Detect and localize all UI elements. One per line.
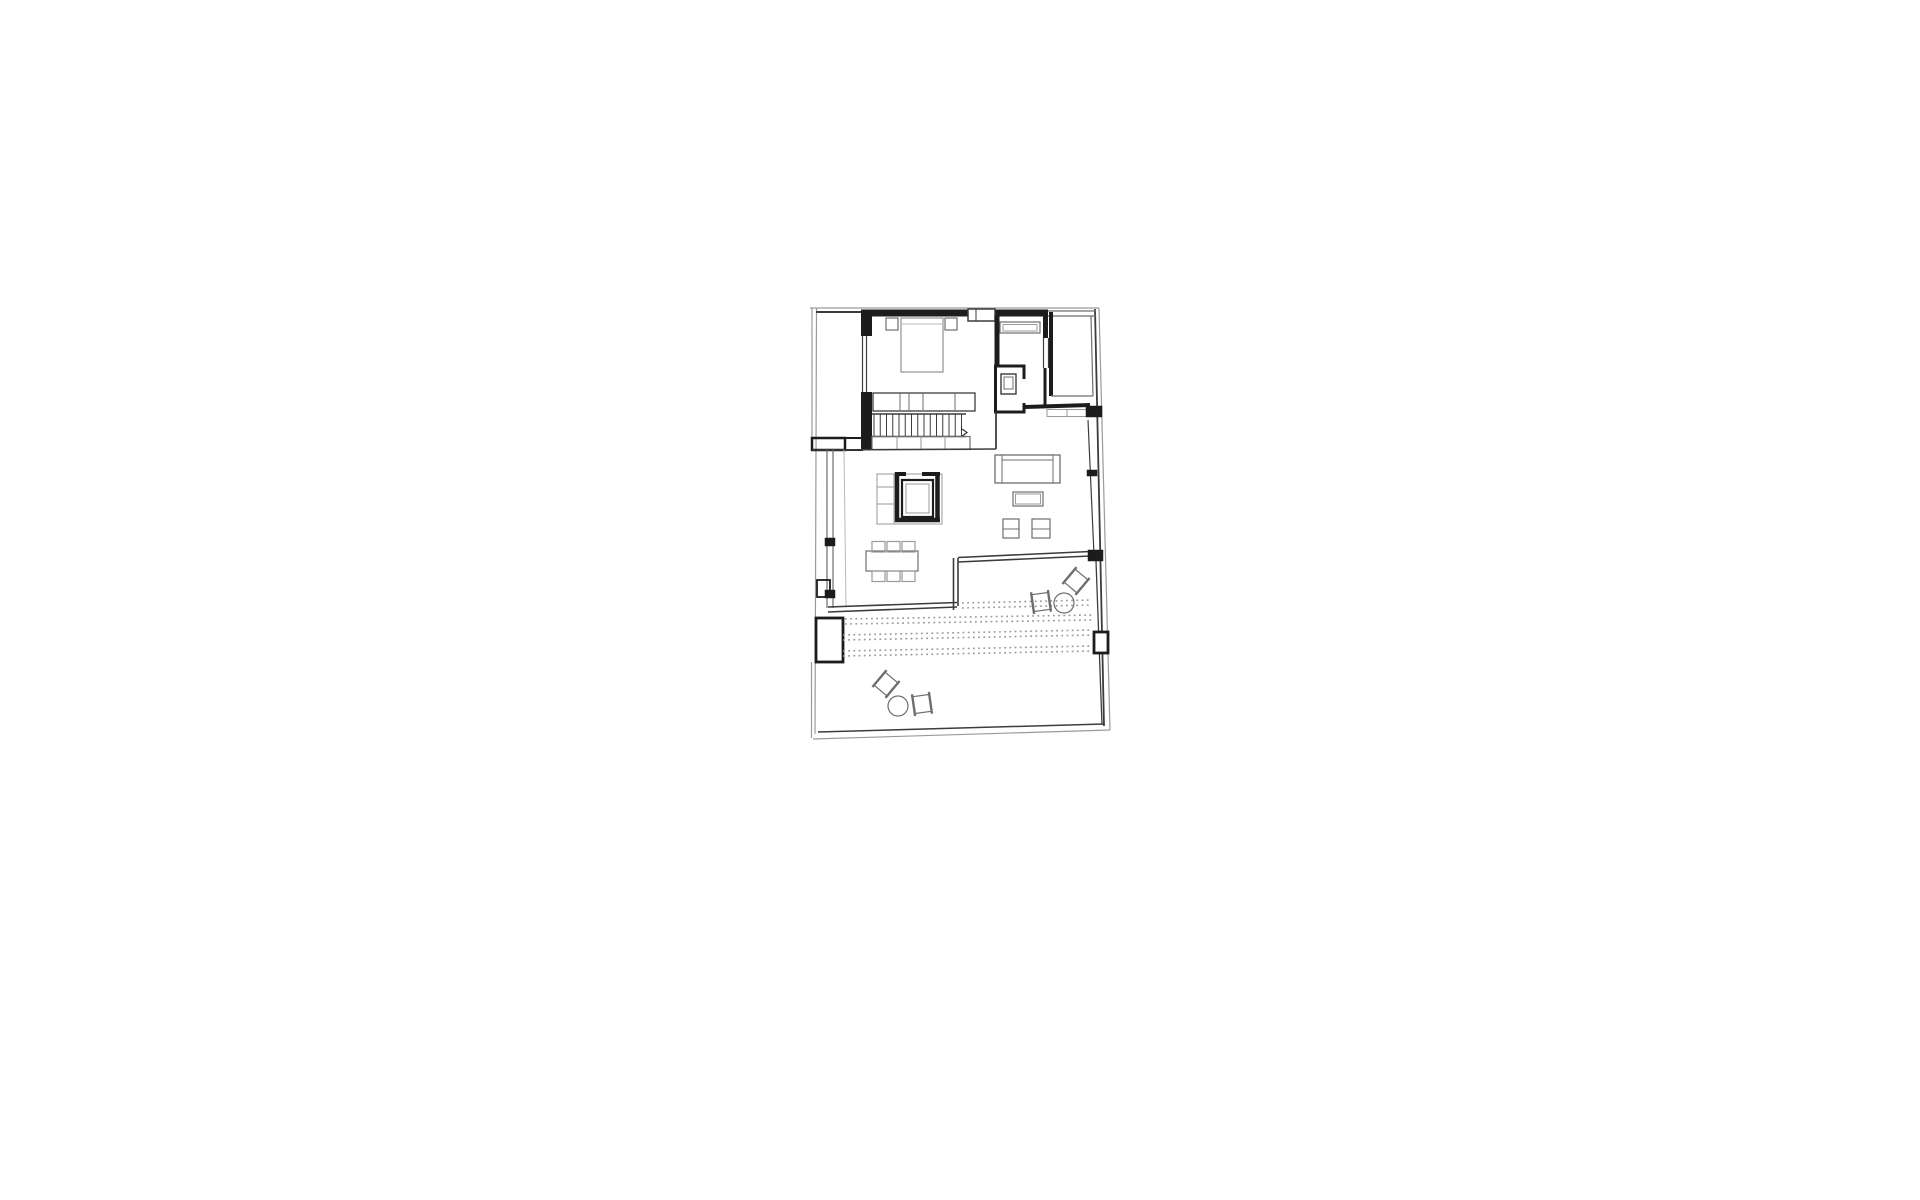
vanity-inner bbox=[1003, 325, 1037, 332]
terrace-chair bbox=[1062, 567, 1089, 595]
paving-joint-dotted bbox=[843, 651, 1092, 656]
east-window-mullion bbox=[1087, 470, 1097, 476]
dining-chair bbox=[902, 571, 915, 582]
se-corner-block bbox=[1088, 550, 1103, 561]
living-north-edge bbox=[812, 449, 996, 450]
east-door-block bbox=[1086, 406, 1102, 417]
page bbox=[0, 0, 1920, 1200]
roofterrace-east-edge bbox=[1091, 316, 1093, 396]
chimney-shaft bbox=[968, 309, 995, 321]
terrace-chair bbox=[1031, 590, 1051, 614]
dining-chair bbox=[887, 571, 900, 582]
site-boundary-right bbox=[1099, 308, 1110, 730]
wardrobe bbox=[873, 393, 975, 411]
terrace-table-round bbox=[888, 696, 908, 716]
floor-plan-svg bbox=[0, 0, 1920, 1200]
east-window-inner bbox=[1088, 420, 1094, 555]
terrace-chair bbox=[872, 670, 899, 698]
terrace-table-round bbox=[1054, 593, 1074, 613]
south-wall-west-inner bbox=[828, 603, 957, 608]
paving-joint-dotted bbox=[845, 620, 1092, 624]
south-wall-west-outer bbox=[828, 607, 957, 612]
west-step-block bbox=[812, 438, 845, 450]
stair-direction-arrow bbox=[962, 429, 967, 436]
paving-joint-dotted bbox=[962, 600, 1092, 603]
nightstand-left bbox=[886, 318, 898, 330]
paving-joint-dotted bbox=[843, 646, 1092, 651]
firebox bbox=[902, 480, 933, 517]
hall-south-wall bbox=[1025, 405, 1090, 407]
west-wall-mullion-upper bbox=[825, 538, 835, 546]
sofa bbox=[995, 455, 1060, 483]
paving-joint-dotted bbox=[845, 615, 1092, 619]
paving-joint-dotted bbox=[843, 635, 1092, 640]
terrace-edge-bottom bbox=[818, 724, 1104, 732]
coffee-table-inner bbox=[1016, 494, 1041, 504]
terrace-pier-west bbox=[816, 618, 843, 662]
void-edge bbox=[844, 450, 846, 606]
toilet-inner bbox=[1004, 377, 1013, 389]
terrace-chair bbox=[912, 692, 932, 716]
dining-chair bbox=[872, 571, 885, 582]
landing-niche bbox=[845, 438, 862, 450]
nightstand-right bbox=[945, 318, 957, 330]
site-boundary-left bbox=[815, 308, 817, 734]
paving-joint-dotted bbox=[843, 630, 1092, 635]
bed bbox=[901, 318, 943, 372]
dining-table bbox=[866, 551, 918, 571]
firebox-inner bbox=[906, 484, 929, 513]
terrace-pillar-east bbox=[1094, 632, 1108, 653]
